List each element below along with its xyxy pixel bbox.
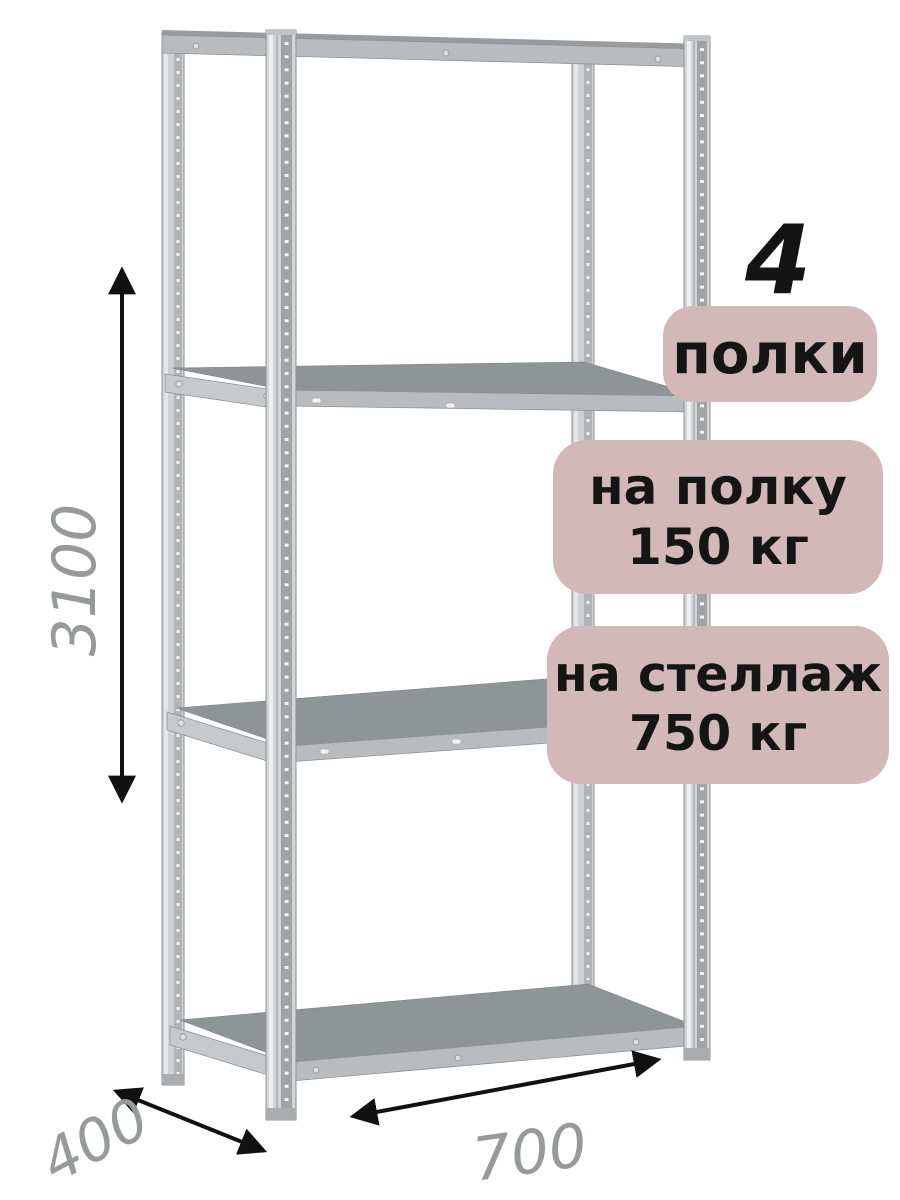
product-image: 4 полки на полку 150 кг на стеллаж 750 к… (0, 0, 900, 1200)
per-rack-load-badge: на стеллаж 750 кг (547, 626, 889, 784)
shelf-top-level (162, 30, 706, 67)
per-shelf-load-text: на полку (589, 457, 847, 517)
per-rack-load-text: на стеллаж (554, 646, 882, 705)
shelves-count-badge: полки (663, 306, 877, 402)
per-shelf-load-value: 150 кг (627, 517, 809, 577)
per-rack-load-value: 750 кг (629, 705, 807, 764)
shelving-rack-illustration (0, 0, 900, 1200)
post-front-left (266, 30, 296, 1120)
height-dimension-label: 3100 (41, 457, 109, 703)
shelves-count: 4 (718, 214, 838, 309)
shelves-count-label: полки (672, 322, 867, 387)
per-shelf-load-badge: на полку 150 кг (553, 440, 883, 594)
post-back-left (162, 33, 184, 1085)
shelf-second-level (165, 362, 700, 412)
